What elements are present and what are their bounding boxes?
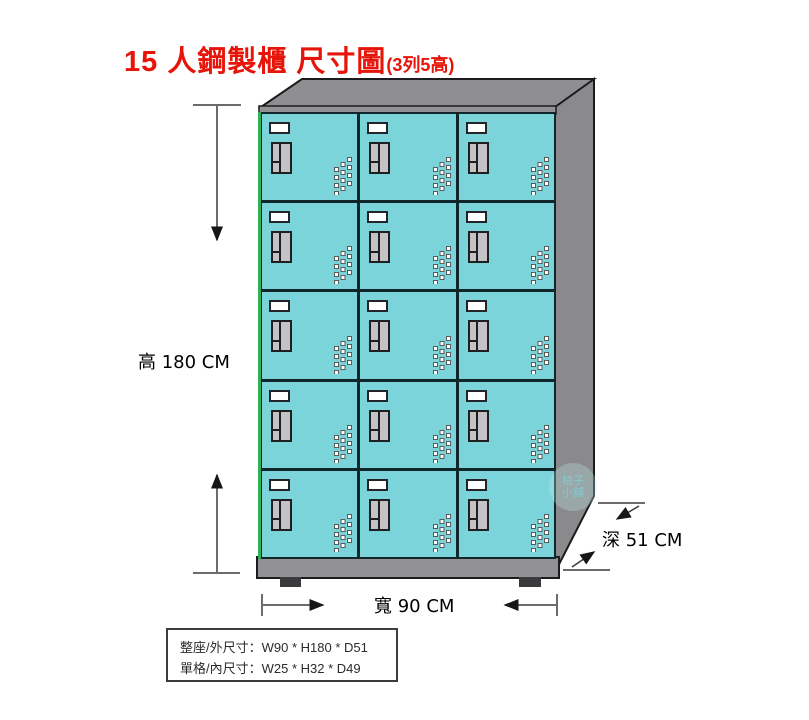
- height-dimension-label: 高 180 CM: [138, 348, 230, 374]
- name-plate: [367, 122, 388, 134]
- locker-door: [459, 292, 554, 378]
- locker-door: [360, 203, 455, 289]
- vent-holes-icon: [531, 336, 549, 374]
- vent-holes-icon: [334, 514, 352, 552]
- vent-holes-icon: [433, 246, 451, 284]
- name-plate: [466, 390, 487, 402]
- locker-door: [459, 382, 554, 468]
- name-plate: [466, 300, 487, 312]
- name-plate: [269, 390, 290, 402]
- name-plate: [269, 479, 290, 491]
- cabinet-left-frame-edge: [258, 112, 261, 559]
- name-plate: [269, 122, 290, 134]
- locker-grid: [260, 112, 556, 559]
- locker-door: [360, 382, 455, 468]
- name-plate: [367, 211, 388, 223]
- locker-door: [459, 471, 554, 557]
- page: { "title": { "main": "15 人鋼製櫃 尺寸圖", "suf…: [0, 0, 809, 720]
- vent-holes-icon: [531, 514, 549, 552]
- cabinet-foot-right: [519, 577, 541, 587]
- door-handle-lock: [369, 142, 390, 174]
- door-handle-lock: [468, 499, 489, 531]
- door-handle-lock: [369, 320, 390, 352]
- locker-door: [262, 203, 357, 289]
- spec-outer-dimensions: 整座/外尺寸：W90 * H180 * D51: [180, 637, 396, 658]
- locker-door: [262, 114, 357, 200]
- locker-door: [360, 114, 455, 200]
- vent-holes-icon: [334, 157, 352, 195]
- name-plate: [466, 479, 487, 491]
- depth-dimension-label: 深 51 CM: [602, 526, 682, 552]
- vent-holes-icon: [433, 425, 451, 463]
- vent-holes-icon: [433, 514, 451, 552]
- locker-door: [459, 203, 554, 289]
- door-handle-lock: [468, 142, 489, 174]
- name-plate: [367, 300, 388, 312]
- locker-door: [262, 471, 357, 557]
- name-plate: [269, 211, 290, 223]
- cabinet-top-face: [261, 79, 594, 107]
- vent-holes-icon: [334, 246, 352, 284]
- vent-holes-icon: [531, 157, 549, 195]
- door-handle-lock: [271, 499, 292, 531]
- door-handle-lock: [271, 410, 292, 442]
- vent-holes-icon: [334, 425, 352, 463]
- door-handle-lock: [468, 320, 489, 352]
- cabinet-side-face: [552, 79, 594, 578]
- door-handle-lock: [271, 142, 292, 174]
- door-handle-lock: [369, 499, 390, 531]
- name-plate: [367, 390, 388, 402]
- locker-door: [262, 382, 357, 468]
- vent-holes-icon: [531, 425, 549, 463]
- vent-holes-icon: [334, 336, 352, 374]
- height-dimension-arrows: [193, 105, 241, 573]
- locker-door: [360, 292, 455, 378]
- vent-holes-icon: [433, 157, 451, 195]
- door-handle-lock: [468, 231, 489, 263]
- name-plate: [269, 300, 290, 312]
- name-plate: [367, 479, 388, 491]
- cabinet-foot-left: [280, 577, 301, 587]
- width-dimension-label: 寬 90 CM: [374, 592, 454, 618]
- door-handle-lock: [369, 231, 390, 263]
- locker-door: [360, 471, 455, 557]
- spec-inner-dimensions: 單格/內尺寸：W25 * H32 * D49: [180, 658, 396, 679]
- name-plate: [466, 122, 487, 134]
- spec-box: 整座/外尺寸：W90 * H180 * D51 單格/內尺寸：W25 * H32…: [166, 628, 398, 682]
- door-handle-lock: [369, 410, 390, 442]
- name-plate: [466, 211, 487, 223]
- cabinet-base: [257, 557, 559, 578]
- locker-door: [459, 114, 554, 200]
- vent-holes-icon: [531, 246, 549, 284]
- door-handle-lock: [468, 410, 489, 442]
- door-handle-lock: [271, 231, 292, 263]
- vent-holes-icon: [433, 336, 451, 374]
- door-handle-lock: [271, 320, 292, 352]
- locker-door: [262, 292, 357, 378]
